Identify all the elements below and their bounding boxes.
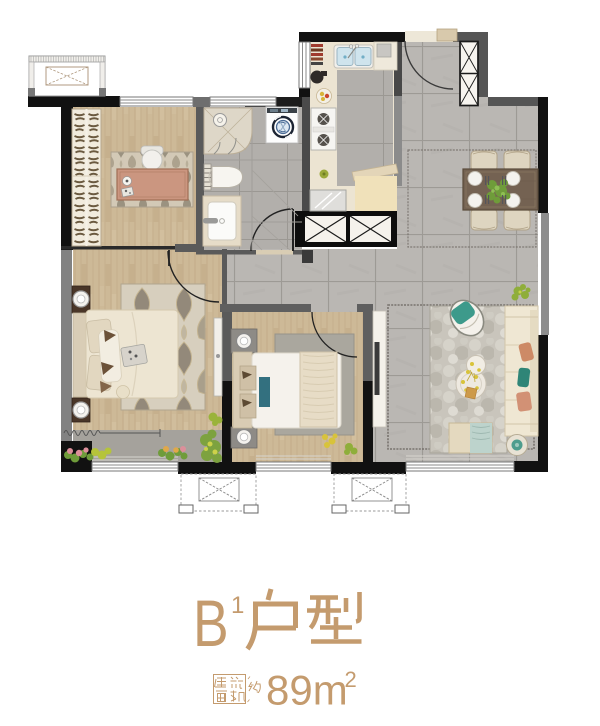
svg-text:2: 2 bbox=[345, 667, 357, 692]
svg-text:B: B bbox=[193, 587, 229, 661]
svg-text:1: 1 bbox=[231, 592, 244, 619]
svg-text:89m: 89m bbox=[266, 667, 348, 714]
